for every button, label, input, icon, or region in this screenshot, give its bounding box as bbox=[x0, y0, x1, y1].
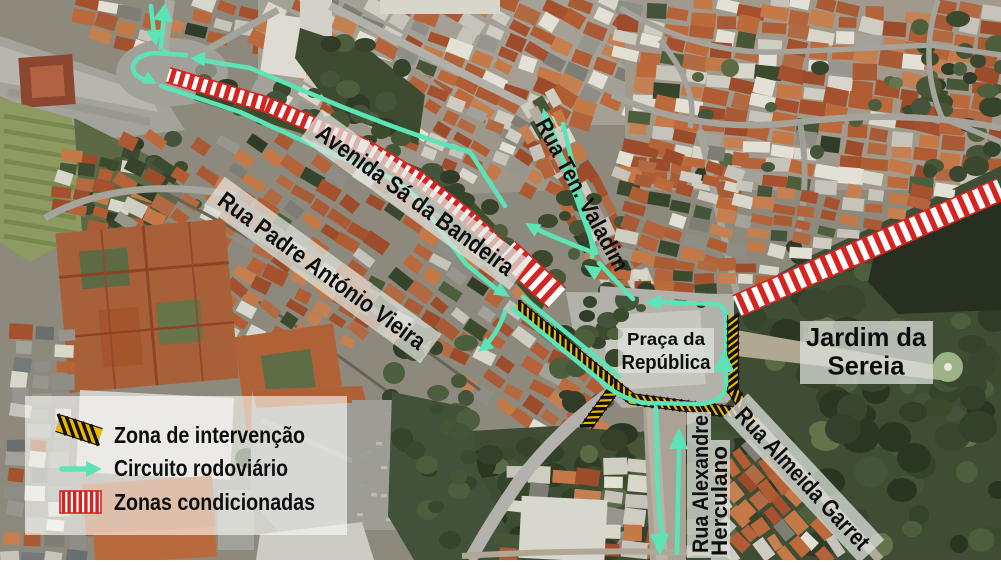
svg-text:Zona de intervenção: Zona de intervenção bbox=[114, 422, 305, 448]
svg-text:Sereia: Sereia bbox=[828, 351, 906, 381]
svg-text:Zonas condicionadas: Zonas condicionadas bbox=[114, 489, 315, 515]
svg-text:Herculano: Herculano bbox=[707, 446, 732, 556]
svg-text:Jardim da: Jardim da bbox=[806, 322, 927, 352]
svg-text:Praça da: Praça da bbox=[627, 329, 705, 349]
svg-text:Circuito rodoviário: Circuito rodoviário bbox=[114, 455, 288, 481]
svg-text:República: República bbox=[622, 351, 712, 374]
